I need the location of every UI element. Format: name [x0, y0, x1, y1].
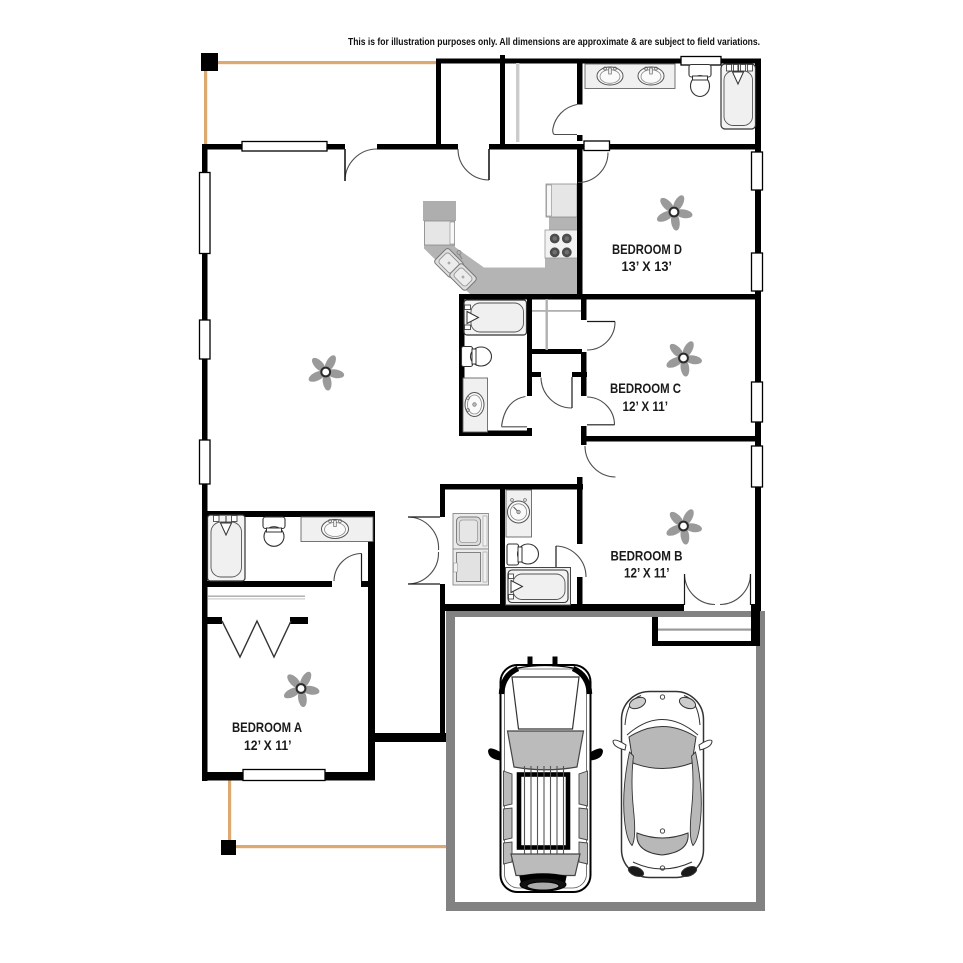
svg-text:12’ X 11’: 12’ X 11’ [244, 737, 292, 753]
svg-text:BEDROOM B: BEDROOM B [611, 548, 683, 564]
svg-text:12’ X 11’: 12’ X 11’ [623, 398, 669, 414]
svg-text:BEDROOM C: BEDROOM C [610, 380, 681, 396]
svg-text:BEDROOM D: BEDROOM D [612, 241, 682, 257]
svg-text:BEDROOM A: BEDROOM A [232, 719, 302, 735]
svg-text:13’ X 13’: 13’ X 13’ [622, 258, 673, 274]
svg-text:This is for illustration purpo: This is for illustration purposes only. … [348, 37, 760, 48]
svg-text:12’ X 11’: 12’ X 11’ [624, 565, 670, 581]
